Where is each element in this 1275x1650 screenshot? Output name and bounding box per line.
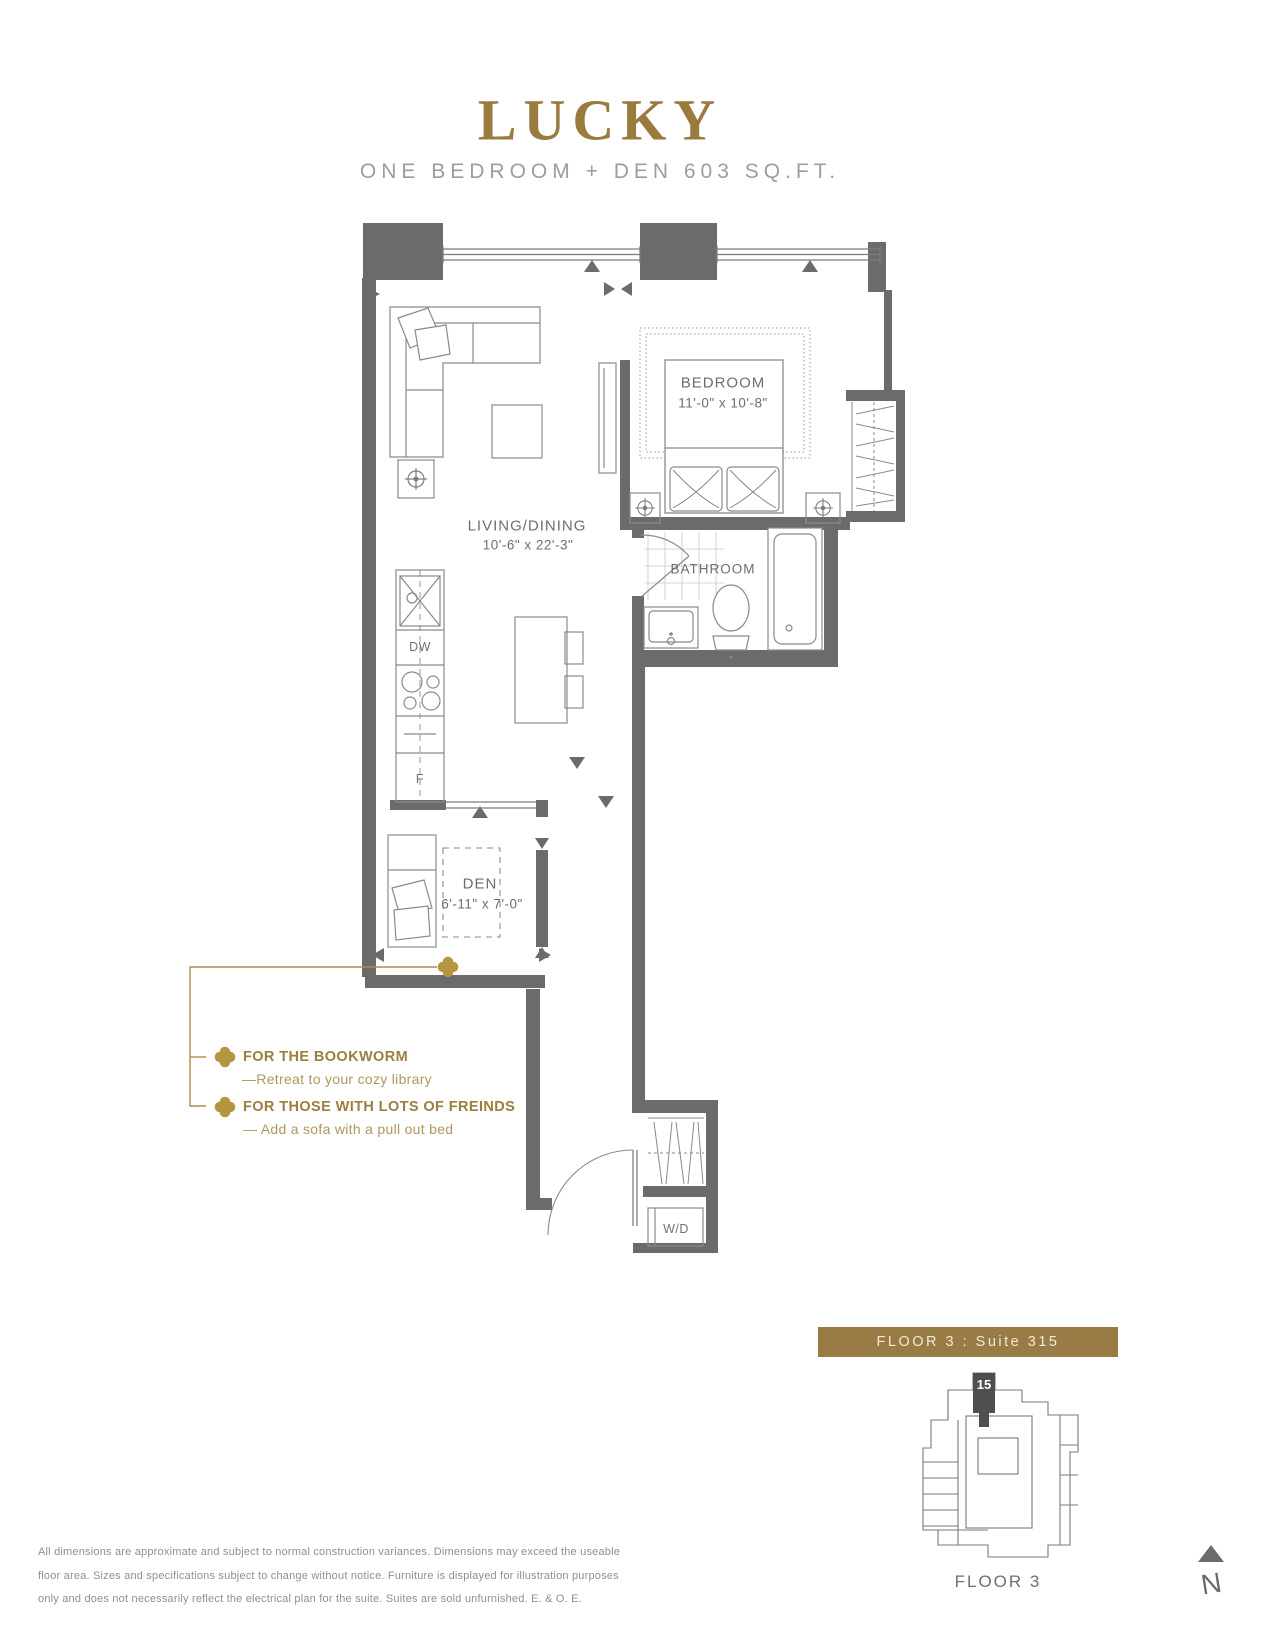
page-subtitle: ONE BEDROOM + DEN 603 SQ.FT. [360, 160, 840, 184]
den-dimensions: 6'-11" x 7'-0" [441, 897, 523, 912]
washer-dryer-label: W/D [663, 1222, 689, 1236]
annotation-bookworm-title: FOR THE BOOKWORM [243, 1049, 408, 1065]
living-dining-dimensions: 10'-6" x 22'-3" [483, 538, 574, 553]
floorplan-drawing: 15 N [0, 0, 1275, 1650]
keyplan-unit-15: 15 [973, 1373, 995, 1427]
north-label: N [1199, 1567, 1224, 1601]
ottoman [492, 405, 542, 458]
disclaimer-line-3: only and does not necessarily reflect th… [38, 1588, 620, 1612]
den-dashed-zone [443, 848, 500, 937]
dishwasher-label: DW [409, 640, 431, 654]
keyplan-unit-number: 15 [977, 1377, 991, 1392]
annotation-friends-title: FOR THOSE WITH LOTS OF FREINDS [243, 1099, 515, 1115]
keyplan [923, 1373, 1078, 1557]
nightstand-lamp-icon [635, 498, 655, 518]
table-lamp-icon [405, 468, 427, 490]
kitchen-counter [396, 570, 444, 802]
den-daybed [388, 835, 436, 947]
bathroom-label: BATHROOM [671, 562, 756, 577]
disclaimer-line-2: floor area. Sizes and specifications sub… [38, 1565, 620, 1589]
bedroom-closet-hangers [852, 402, 894, 511]
page-title: LUCKY [478, 87, 722, 154]
bed [640, 328, 810, 513]
bedroom-dimensions: 11'-0" x 10'-8" [678, 396, 768, 411]
bathtub [768, 528, 822, 650]
sofa [390, 307, 540, 457]
floorplan-page: { "header": { "title": "LUCKY", "subtitl… [0, 0, 1275, 1650]
suite-banner: FLOOR 3 : Suite 315 [818, 1327, 1118, 1357]
bathroom-vanity [644, 607, 698, 648]
suite-banner-text: FLOOR 3 : Suite 315 [877, 1334, 1060, 1350]
fridge-label: F [416, 772, 424, 786]
disclaimer-line-1: All dimensions are approximate and subje… [38, 1541, 620, 1565]
disclaimer: All dimensions are approximate and subje… [38, 1541, 620, 1612]
tv-unit [599, 363, 616, 473]
north-arrow: N [1198, 1545, 1224, 1600]
nightstand-lamp-icon [813, 498, 833, 518]
friends-clover-icon [215, 1097, 236, 1118]
annotation-bookworm-desc: —Retreat to your cozy library [242, 1071, 432, 1087]
bedroom-label: BEDROOM [681, 375, 766, 392]
entry-door [548, 1150, 637, 1235]
kitchen-island [515, 617, 583, 723]
den-label: DEN [463, 876, 498, 893]
keyplan-floor-label: FLOOR 3 [955, 1572, 1042, 1592]
den-window [446, 802, 536, 808]
living-dining-label: LIVING/DINING [468, 518, 587, 535]
toilet [713, 585, 749, 659]
entry-closet-hangers [648, 1118, 704, 1184]
bookworm-clover-icon [215, 1047, 236, 1068]
den-clover-icon [438, 957, 459, 978]
annotation-friends-desc: — Add a sofa with a pull out bed [243, 1121, 453, 1137]
